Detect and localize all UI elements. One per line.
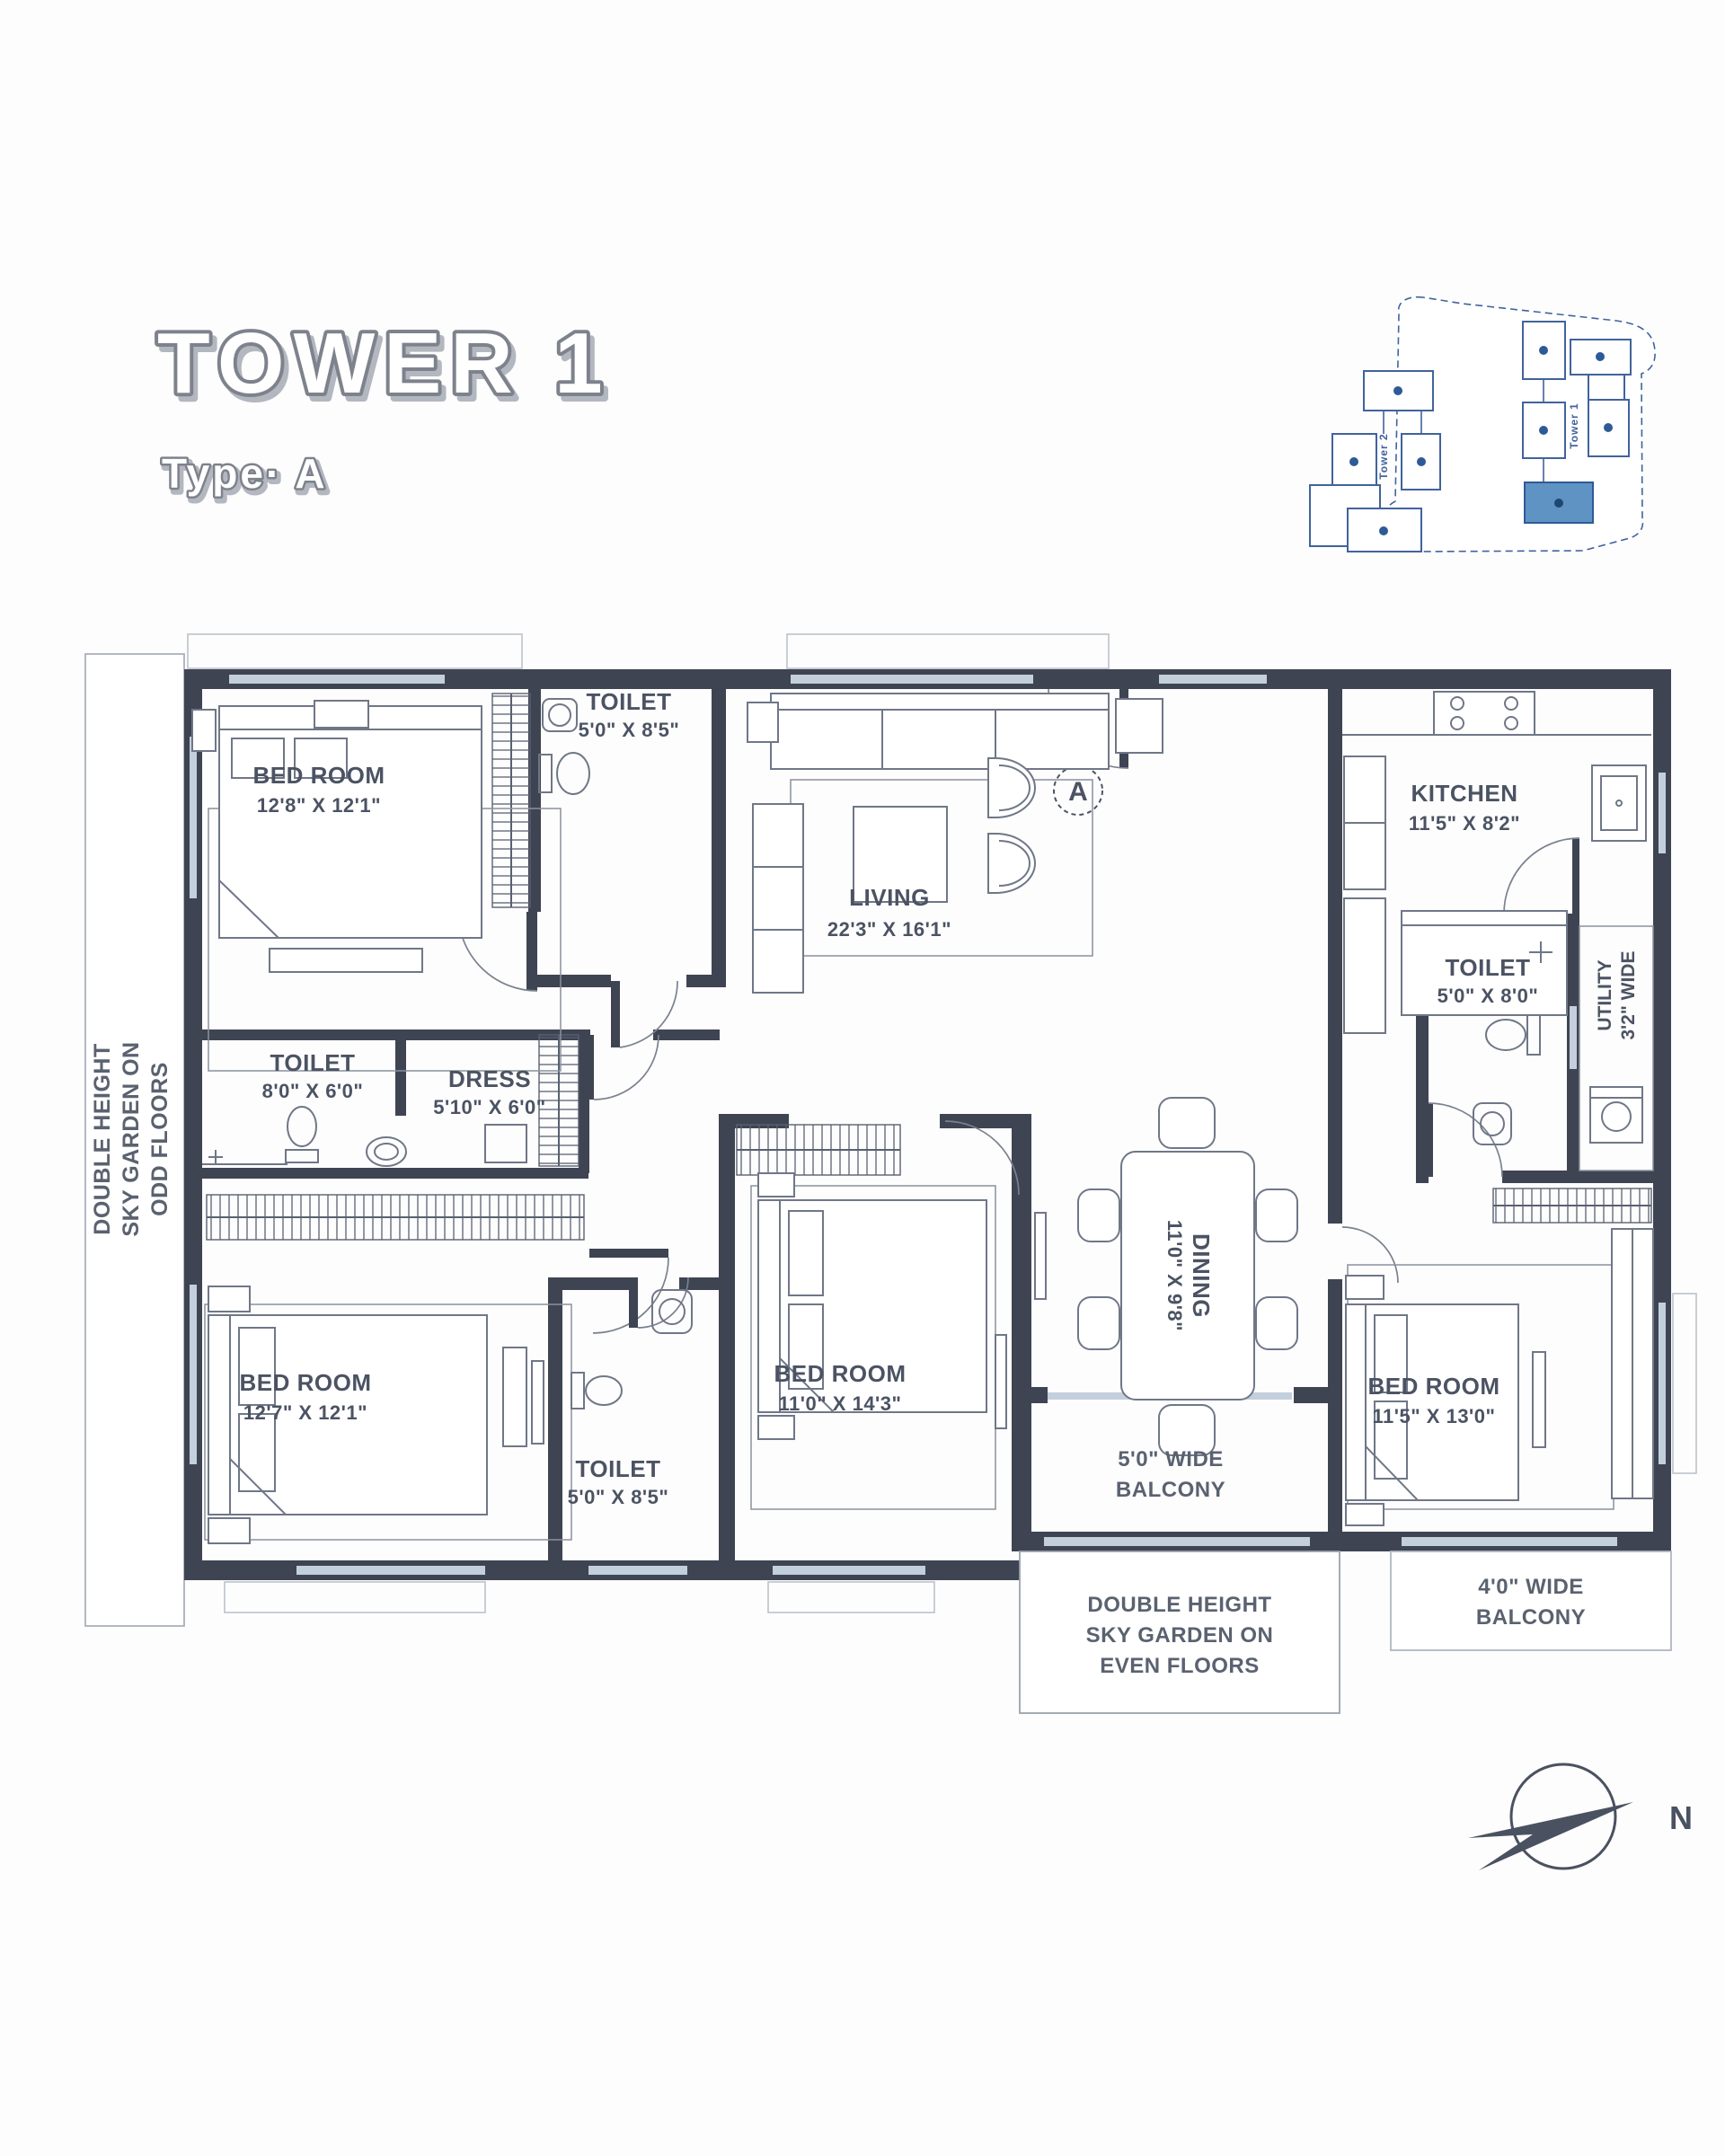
sky-garden-odd-floors: DOUBLE HEIGHT SKY GARDEN ON ODD FLOORS [85,654,184,1626]
label-dress-name: DRESS [448,1065,531,1092]
bed [219,729,482,938]
balcony-5-line2: BALCONY [1116,1478,1225,1502]
fixtures-toilet-master [202,1107,406,1166]
wc-bowl [557,753,589,794]
sky-garden-even-line3: EVEN FLOORS [1100,1654,1260,1678]
locator-unit-dot [1539,426,1548,435]
wc-bowl [1486,1020,1526,1050]
washbasin [367,1137,406,1166]
floor-plan-page: TOWER 1 TOWER 1 Type· A Type· A Tower 2 [0,0,1725,2156]
washbasin-bowl [375,1144,398,1160]
stove [1434,692,1535,735]
dining-chair [1256,1189,1297,1241]
site-locator-map: Tower 2 Tower 1 [1310,297,1655,552]
label-utility: UTILITY 3'2" WIDE [1595,951,1639,1040]
bench [270,949,422,972]
label-dining-dims: 11'0" X 9'8" [1163,1220,1186,1331]
balcony-4-line1: 4'0" WIDE [1478,1575,1584,1599]
ledge [1673,1294,1696,1473]
label-bedroom-middle-name: BED ROOM [774,1360,907,1387]
locator-unit-dot [1393,386,1402,395]
chaise [753,804,803,993]
label-kitchen-dims: 11'5" X 8'2" [1409,812,1520,835]
entrance-marker-letter: A [1068,777,1088,807]
dining-chair [1078,1189,1119,1241]
compass-arrow [1468,1802,1633,1870]
label-bedroom-right-name: BED ROOM [1368,1373,1500,1400]
label-utility-dims: 3'2" WIDE [1618,951,1639,1040]
locator-unit-dot [1417,457,1426,466]
dining-table [1121,1152,1254,1400]
sky-garden-odd-line2: SKY GARDEN ON [119,1041,144,1236]
label-dining-name: DINING [1188,1233,1215,1318]
tv-unit [1533,1352,1545,1447]
label-bedroom-bottom-left-dims: 12'7" X 12'1" [243,1401,367,1424]
side-table [1346,1504,1384,1525]
locator-unit-dot [1596,352,1605,361]
sky-garden-even-line2: SKY GARDEN ON [1086,1623,1274,1648]
fixtures-toilet-top [539,699,589,794]
label-bedroom-top-left-dims: 12'8" X 12'1" [257,794,381,817]
shower-marks [208,1150,223,1164]
side-table [1116,699,1163,753]
side-table [747,702,778,742]
locator-unit-dot [1604,423,1613,432]
shelf [314,701,368,728]
bed-headboard [208,1315,230,1515]
bench [503,1347,526,1446]
locator-unit [1588,375,1624,400]
label-toilet-bottom-name: TOILET [576,1455,661,1482]
ledge [768,1582,934,1613]
compass: N [1468,1764,1693,1870]
sky-garden-odd-line3: ODD FLOORS [147,1062,172,1216]
furniture-utility [1579,926,1653,1171]
side-table [758,1173,794,1197]
side-table [758,1416,794,1439]
furniture-living [747,694,1163,993]
side-table [1346,1276,1384,1299]
ledge [188,634,522,668]
label-toilet-top-dims: 5'0" X 8'5" [579,719,680,741]
label-bedroom-bottom-left-name: BED ROOM [240,1369,372,1396]
title-subtitle: Type· A [162,450,328,497]
wc-bowl [287,1107,316,1146]
washbasin-bowl [1481,1112,1504,1135]
dining-chair [1256,1297,1297,1349]
washbasin-bowl [659,1299,685,1324]
side-table [208,1518,250,1543]
washbasin-bowl [549,704,571,726]
locator-unit-dot [1539,346,1548,355]
label-toilet-master-name: TOILET [270,1049,356,1076]
sofa [771,694,1109,769]
title-main: TOWER 1 [157,315,612,411]
tv-unit [532,1361,544,1444]
label-toilet-bottom-dims: 5'0" X 8'5" [568,1486,669,1508]
side-table [192,710,216,751]
label-bedroom-top-left-name: BED ROOM [253,762,385,789]
wc-tank [539,755,552,792]
page-title: TOWER 1 TOWER 1 Type· A Type· A [157,315,616,500]
floor-plan-canvas: TOWER 1 TOWER 1 Type· A Type· A Tower 2 [0,0,1725,2156]
label-bedroom-middle-dims: 11'0" X 14'3" [779,1392,902,1415]
balcony-4-line2: BALCONY [1476,1605,1586,1630]
furniture-bedroom-middle [751,1173,1006,1509]
locator-highlight-dot [1554,499,1563,508]
label-kitchen-name: KITCHEN [1411,780,1517,807]
label-toilet-master-dims: 8'0" X 6'0" [262,1080,364,1102]
sky-garden-odd-label: DOUBLE HEIGHT SKY GARDEN ON ODD FLOORS [90,1041,172,1236]
ledge [787,634,1109,668]
dining-chair [1078,1297,1119,1349]
label-toilet-kitchen-name: TOILET [1446,954,1531,981]
label-toilet-kitchen-dims: 5'0" X 8'0" [1437,985,1539,1007]
locator-tower2-label: Tower 2 [1377,433,1390,479]
label-dress-dims: 5'10" X 6'0" [433,1096,545,1118]
wc-bowl [586,1376,622,1405]
wc-tank [286,1150,318,1162]
label-living-dims: 22'3" X 16'1" [827,918,951,941]
balcony-4-outline [1391,1551,1671,1650]
locator-unit-dot [1349,457,1358,466]
sky-garden-odd-line1: DOUBLE HEIGHT [90,1043,115,1234]
label-utility-name: UTILITY [1595,959,1615,1030]
locator-tower1-label: Tower 1 [1568,402,1580,448]
dress-stool [485,1125,526,1162]
refrigerator [1344,898,1385,1033]
ledge [225,1582,485,1613]
label-bedroom-right-dims: 11'5" X 13'0" [1373,1405,1496,1427]
washing-machine [1590,1087,1642,1143]
entrance-marker: A [1054,766,1102,815]
sky-garden-even-line1: DOUBLE HEIGHT [1087,1593,1271,1617]
label-dining: DINING 11'0" X 9'8" [1163,1220,1215,1331]
locator-unit-dot [1379,526,1388,535]
furniture-dress [485,1125,526,1162]
compass-north-label: N [1669,1799,1693,1836]
side-table [208,1286,250,1312]
wc-tank [571,1373,584,1409]
label-living-name: LIVING [849,884,930,911]
label-toilet-top-name: TOILET [587,688,672,715]
balcony-5-line1: 5'0" WIDE [1118,1447,1224,1471]
wc-tank [1527,1015,1540,1055]
bed-headboard [1346,1304,1366,1500]
tv-unit [1035,1213,1046,1299]
tv-unit [995,1335,1006,1428]
dining-chair [1159,1098,1215,1148]
